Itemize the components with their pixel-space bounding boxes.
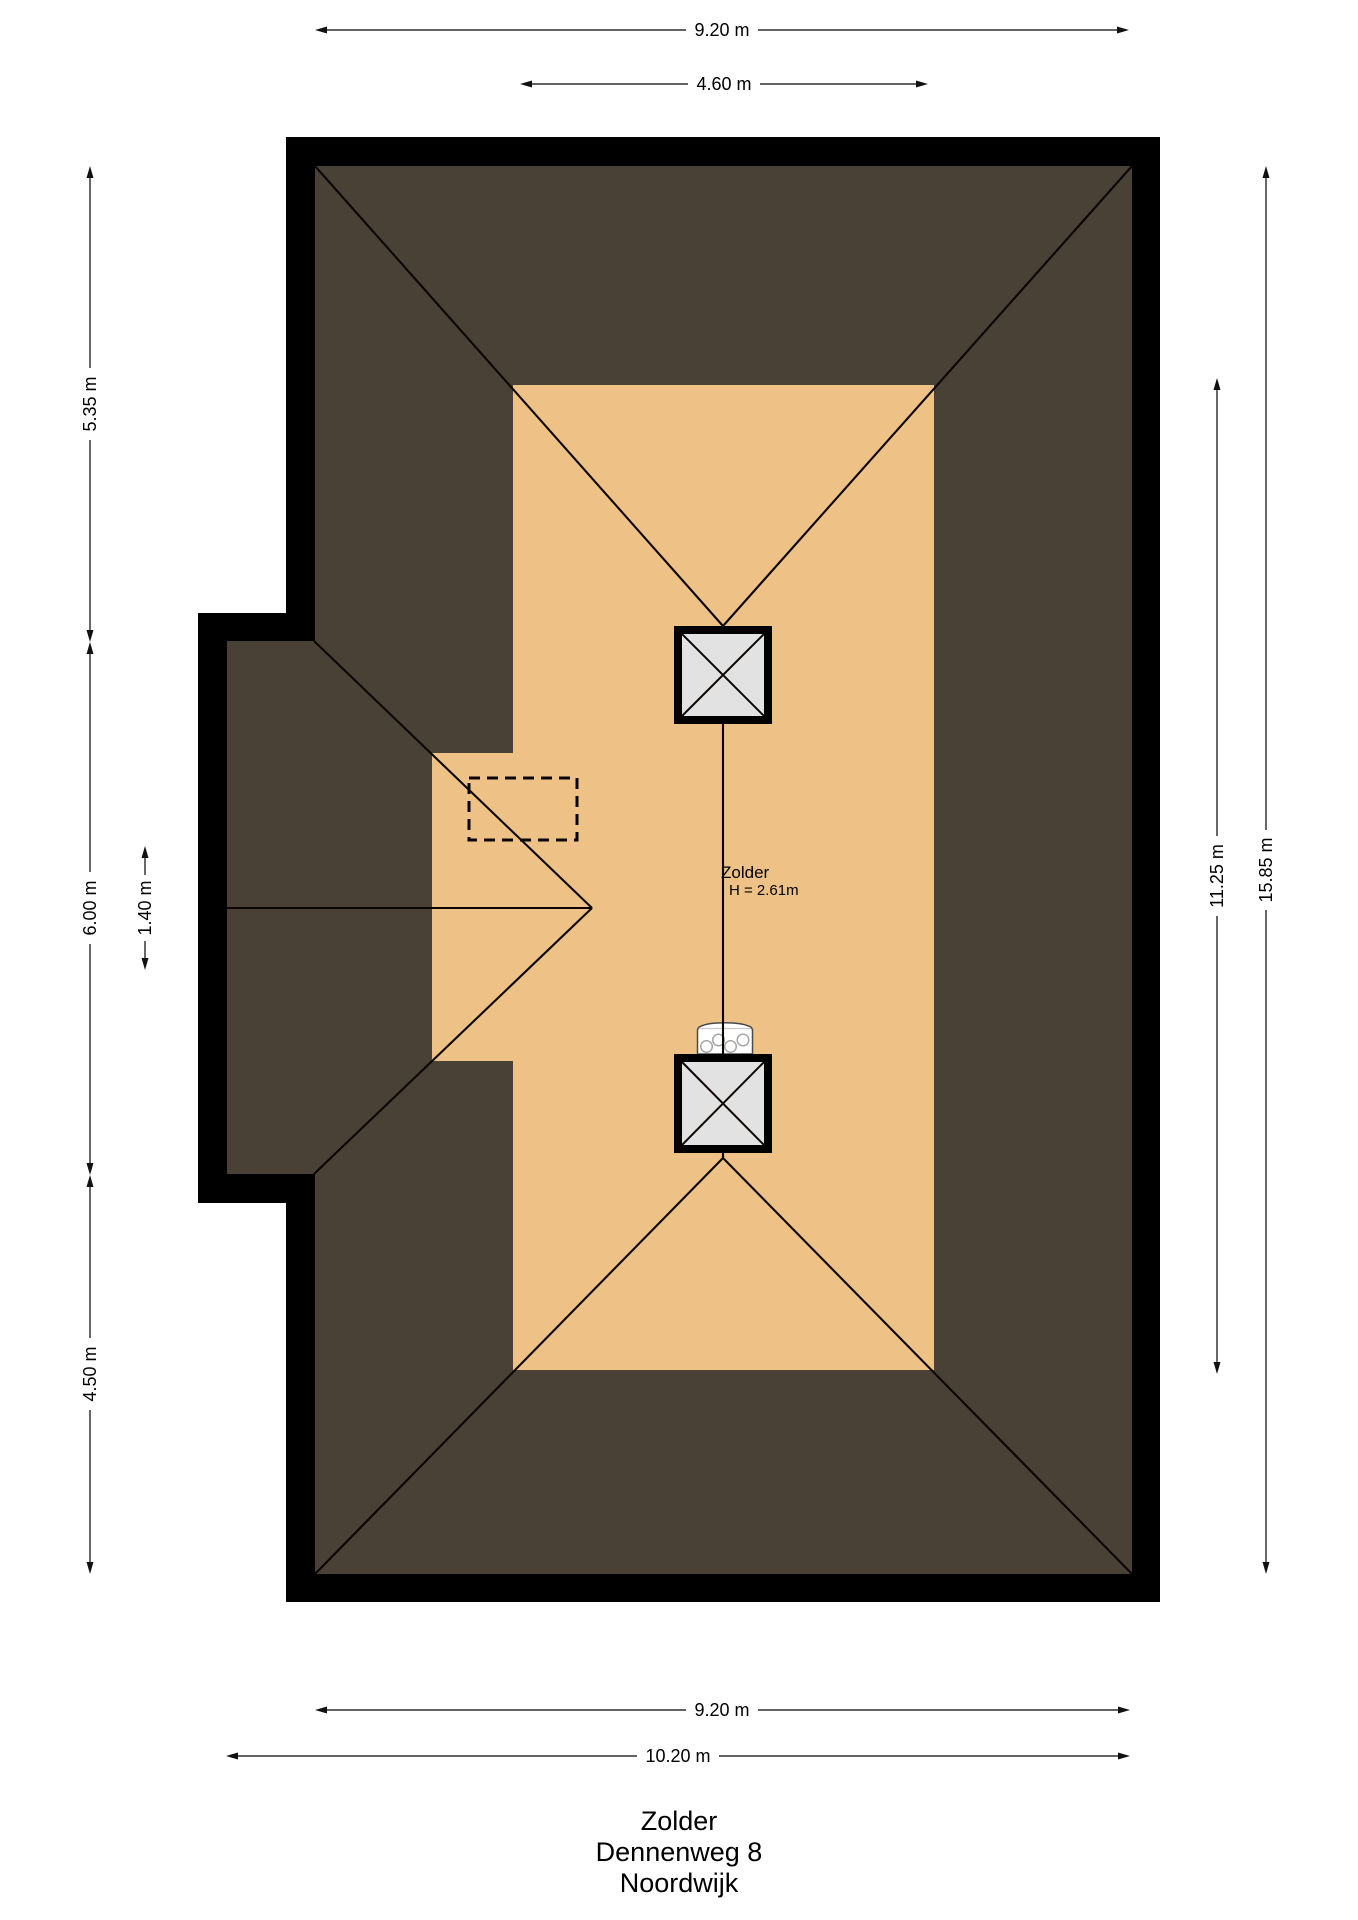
- svg-text:4.50 m: 4.50 m: [80, 1346, 100, 1401]
- svg-text:9.20 m: 9.20 m: [694, 20, 749, 40]
- svg-text:4.60 m: 4.60 m: [696, 74, 751, 94]
- svg-text:1.40 m: 1.40 m: [135, 880, 155, 935]
- svg-text:H = 2.61m: H = 2.61m: [729, 882, 799, 899]
- svg-text:Zolder: Zolder: [641, 1806, 718, 1836]
- svg-text:15.85 m: 15.85 m: [1256, 837, 1276, 902]
- svg-text:10.20 m: 10.20 m: [645, 1746, 710, 1766]
- svg-text:6.00 m: 6.00 m: [80, 880, 100, 935]
- svg-text:Zolder: Zolder: [721, 863, 770, 882]
- svg-text:11.25 m: 11.25 m: [1207, 844, 1227, 908]
- svg-text:9.20 m: 9.20 m: [694, 1700, 749, 1720]
- svg-text:Dennenweg 8: Dennenweg 8: [596, 1837, 763, 1867]
- svg-text:5.35 m: 5.35 m: [80, 376, 100, 431]
- svg-text:Noordwijk: Noordwijk: [620, 1868, 739, 1898]
